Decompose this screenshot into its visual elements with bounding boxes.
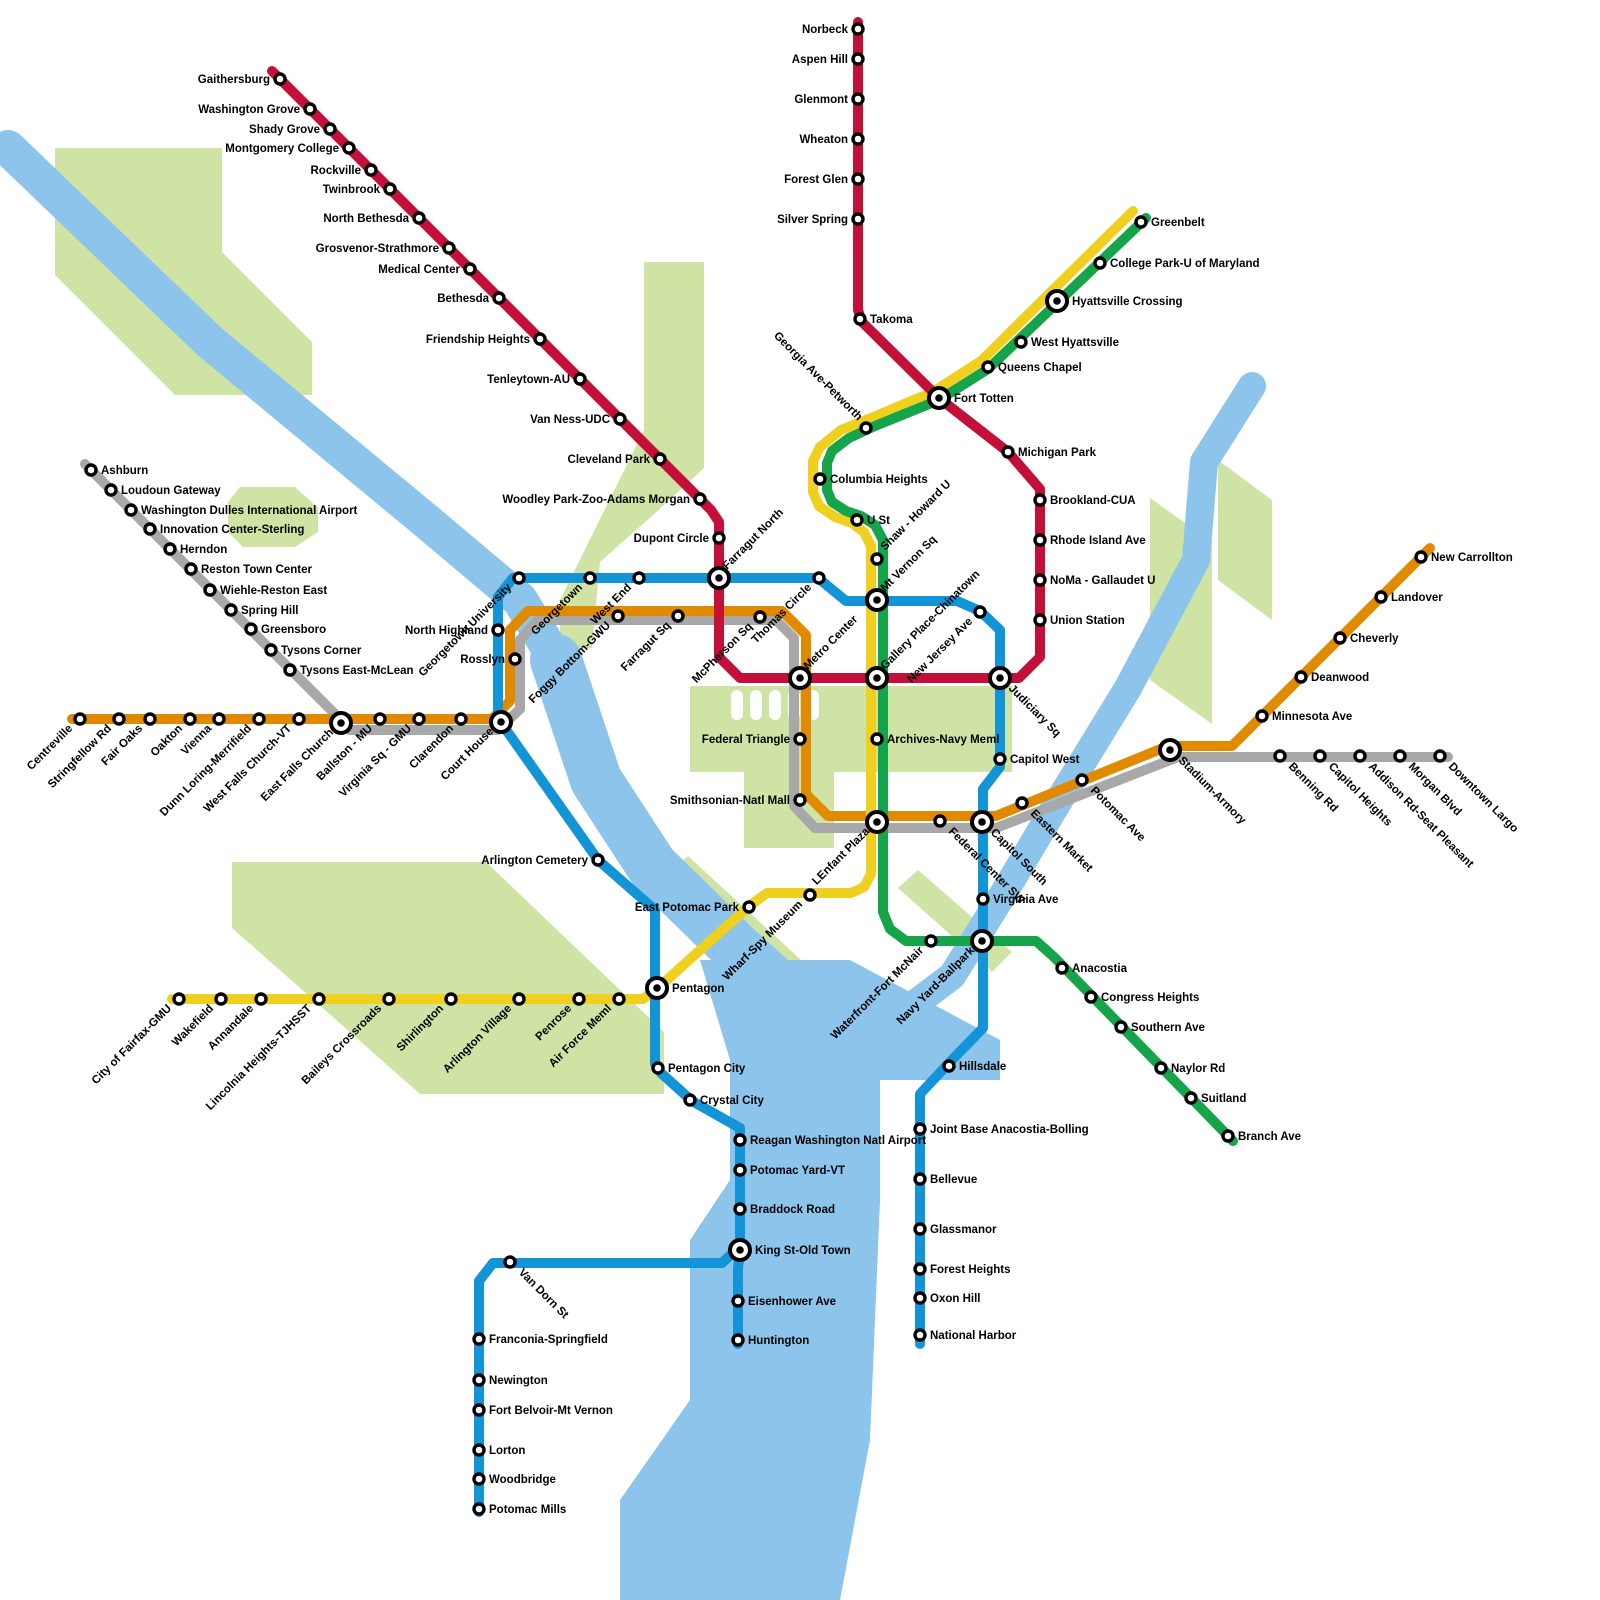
- station-label: Wheaton: [799, 134, 848, 146]
- station-shady-grove: [325, 124, 335, 134]
- station-fair-oaks: [145, 714, 155, 724]
- station-potomac-yard-vt: [735, 1165, 745, 1175]
- station-west-falls-church-vt: [294, 714, 304, 724]
- station-marker: [585, 573, 595, 583]
- station-takoma: [855, 314, 865, 324]
- station-label: Southern Ave: [1131, 1022, 1205, 1034]
- station-marker: [853, 134, 863, 144]
- metro-map-svg: GaithersburgWashington GroveShady GroveM…: [0, 0, 1600, 1600]
- station-marker: [1435, 751, 1445, 761]
- station-federal-triangle: [795, 734, 805, 744]
- station-new-jersey-ave: [975, 607, 985, 617]
- station-label: Hyattsville Crossing: [1072, 296, 1183, 308]
- station-label: Herndon: [180, 544, 227, 556]
- station-marker: [266, 645, 276, 655]
- station-label: Tysons Corner: [281, 645, 362, 657]
- station-label: North Bethesda: [323, 213, 409, 225]
- station-marker: [575, 374, 585, 384]
- station-label: Arlington Cemetery: [481, 855, 588, 867]
- station-benning-rd: [1275, 751, 1285, 761]
- station-label: Georgia Ave-Petworth: [771, 330, 864, 423]
- station-marker: [474, 1504, 484, 1514]
- station-marker: [514, 573, 524, 583]
- station-marker: [1057, 963, 1067, 973]
- station-marker: [1035, 615, 1045, 625]
- station-label: Tenleytown-AU: [487, 374, 570, 386]
- station-naylor-rd: [1156, 1063, 1166, 1073]
- station-label: College Park-U of Maryland: [1110, 258, 1260, 270]
- station-marker: [1156, 1063, 1166, 1073]
- station-marker: [254, 714, 264, 724]
- station-marker: [853, 24, 863, 34]
- station-marker: [216, 994, 226, 1004]
- station-marker: [1335, 633, 1345, 643]
- station-marker: [325, 124, 335, 134]
- station-label: Greensboro: [261, 624, 326, 636]
- station-label: Twinbrook: [323, 184, 381, 196]
- station-label: Medical Center: [378, 264, 460, 276]
- station-label: Takoma: [870, 314, 913, 326]
- station-marker: [735, 1165, 745, 1175]
- station-potomac-ave: [1077, 775, 1087, 785]
- transfer-dot: [796, 674, 804, 682]
- station-label: Grosvenor-Strathmore: [316, 243, 439, 255]
- station-marker: [915, 1224, 925, 1234]
- station-west-hyattsville: [1016, 337, 1026, 347]
- station-morgan-blvd: [1395, 751, 1405, 761]
- station-west-end: [634, 573, 644, 583]
- mall-pillar: [731, 690, 743, 720]
- station-georgetown-university: [514, 573, 524, 583]
- station-marker: [613, 611, 623, 621]
- station-marker: [1086, 992, 1096, 1002]
- station-rhode-island-ave: [1035, 535, 1045, 545]
- station-marker: [995, 754, 1005, 764]
- station-label: Cleveland Park: [568, 454, 651, 466]
- station-marker: [593, 855, 603, 865]
- station-label: Greenbelt: [1151, 217, 1205, 229]
- station-north-bethesda: [414, 213, 424, 223]
- station-marker: [1016, 337, 1026, 347]
- station-marker: [86, 465, 96, 475]
- station-marker: [685, 1095, 695, 1105]
- station-label: Vienna: [179, 722, 214, 757]
- station-farragut-north: [709, 568, 729, 588]
- station-van-ness-udc: [615, 414, 625, 424]
- station-shaw-howard-u: [872, 554, 882, 564]
- station-label: Montgomery College: [225, 143, 339, 155]
- station-marker: [695, 494, 705, 504]
- station-marker: [366, 165, 376, 175]
- station-marker: [294, 714, 304, 724]
- station-label: New Carrollton: [1431, 552, 1513, 564]
- station-label: West Hyattsville: [1031, 337, 1119, 349]
- station-clarendon: [456, 714, 466, 724]
- station-gallery-place-chinatown: [867, 668, 887, 688]
- station-twinbrook: [385, 184, 395, 194]
- station-tenleytown-au: [575, 374, 585, 384]
- station-forest-heights: [915, 1264, 925, 1274]
- transfer-dot: [337, 719, 345, 727]
- station-label: Stadium-Armory: [1176, 755, 1249, 828]
- station-innovation-center-sterling: [145, 524, 155, 534]
- station-washington-dulles-international-airport: [126, 505, 136, 515]
- station-glassmanor: [915, 1224, 925, 1234]
- station-marker: [1186, 1093, 1196, 1103]
- station-vienna: [214, 714, 224, 724]
- station-farragut-sq: [673, 611, 683, 621]
- transfer-dot: [978, 937, 986, 945]
- station-label: Dupont Circle: [634, 533, 709, 545]
- station-marker: [456, 714, 466, 724]
- station-eastern-market: [1017, 798, 1027, 808]
- potomac-upper: [8, 148, 576, 726]
- station-label: Crystal City: [700, 1095, 765, 1107]
- station-marker: [465, 264, 475, 274]
- station-marker: [735, 1204, 745, 1214]
- station-centreville: [75, 714, 85, 724]
- station-marker: [205, 585, 215, 595]
- station-marker: [494, 293, 504, 303]
- station-label: Congress Heights: [1101, 992, 1199, 1004]
- station-marker: [505, 1257, 515, 1267]
- transfer-dot: [873, 596, 881, 604]
- station-fort-belvoir-mt-vernon: [474, 1405, 484, 1415]
- station-label: Reagan Washington Natl Airport: [750, 1135, 926, 1147]
- station-smithsonian-natl-mall: [795, 795, 805, 805]
- station-label: Woodley Park-Zoo-Adams Morgan: [502, 494, 690, 506]
- station-label: Hillsdale: [959, 1061, 1006, 1073]
- station-label: Queens Chapel: [998, 362, 1082, 374]
- station-label: Ashburn: [101, 465, 148, 477]
- station-braddock-road: [735, 1204, 745, 1214]
- station-label: Oxon Hill: [930, 1293, 980, 1305]
- station-marker: [474, 1375, 484, 1385]
- station-marker: [1116, 1022, 1126, 1032]
- station-gaithersburg: [275, 74, 285, 84]
- station-label: Loudoun Gateway: [121, 485, 221, 497]
- metro-map: GaithersburgWashington GroveShady GroveM…: [0, 0, 1600, 1600]
- station-capitol-west: [995, 754, 1005, 764]
- station-label: NoMa - Gallaudet U: [1050, 575, 1155, 587]
- station-thomas-circle: [814, 573, 824, 583]
- station-marker: [285, 665, 295, 675]
- station-wharf-spy-museum: [805, 890, 815, 900]
- station-marker: [474, 1474, 484, 1484]
- station-label: King St-Old Town: [755, 1245, 851, 1257]
- station-marker: [853, 54, 863, 64]
- station-marker: [855, 314, 865, 324]
- station-marker: [384, 994, 394, 1004]
- station-michigan-park: [1003, 447, 1013, 457]
- station-tysons-corner: [266, 645, 276, 655]
- anacostia-park-northeast: [1218, 460, 1272, 620]
- station-label: Michigan Park: [1018, 447, 1097, 459]
- station-marker: [1136, 217, 1146, 227]
- station-metro-center: [790, 668, 810, 688]
- station-label: Archives-Navy Meml: [887, 734, 1000, 746]
- station-label: Glassmanor: [930, 1224, 997, 1236]
- station-label: Bethesda: [437, 293, 489, 305]
- station-label: Rosslyn: [460, 654, 505, 666]
- station-marker: [493, 625, 503, 635]
- station-marker: [653, 1063, 663, 1073]
- station-dupont-circle: [714, 533, 724, 543]
- mall-pillar: [769, 690, 781, 720]
- station-marker: [1035, 535, 1045, 545]
- station-label: Columbia Heights: [830, 474, 928, 486]
- station-federal-center-sw: [935, 816, 945, 826]
- station-marker: [795, 734, 805, 744]
- station-tysons-east-mclean: [285, 665, 295, 675]
- station-deanwood: [1296, 672, 1306, 682]
- station-label: Joint Base Anacostia-Bolling: [930, 1124, 1089, 1136]
- station-label: Pentagon City: [668, 1063, 746, 1075]
- station-suitland: [1186, 1093, 1196, 1103]
- station-national-harbor: [915, 1330, 925, 1340]
- station-rosslyn: [510, 654, 520, 664]
- station-woodley-park-zoo-adams-morgan: [695, 494, 705, 504]
- station-north-highland: [493, 625, 503, 635]
- station-marker: [853, 174, 863, 184]
- station-mcpherson-sq: [755, 612, 765, 622]
- station-oxon-hill: [915, 1293, 925, 1303]
- station-marker: [574, 994, 584, 1004]
- station-stadium-armory: [1160, 740, 1180, 760]
- station-union-station: [1035, 615, 1045, 625]
- station-label: Silver Spring: [777, 214, 848, 226]
- transfer-dot: [715, 574, 723, 582]
- station-marker: [186, 564, 196, 574]
- station-marker: [126, 505, 136, 515]
- station-label: Potomac Ave: [1088, 785, 1147, 844]
- station-marker: [1376, 592, 1386, 602]
- station-marker: [185, 714, 195, 724]
- station-marker: [385, 184, 395, 194]
- station-dunn-loring-merrifield: [254, 714, 264, 724]
- station-lenfant-plaza: [867, 812, 887, 832]
- station-marker: [474, 1405, 484, 1415]
- station-label: Newington: [489, 1375, 548, 1387]
- station-virginia-ave: [978, 894, 988, 904]
- station-label: Potomac Mills: [489, 1504, 566, 1516]
- station-archives-navy-meml: [872, 734, 882, 744]
- station-marker: [915, 1124, 925, 1134]
- station-city-of-fairfax-gmu: [174, 994, 184, 1004]
- station-ashburn: [86, 465, 96, 475]
- transfer-dot: [1053, 297, 1061, 305]
- station-marker: [655, 454, 665, 464]
- station-pentagon-city: [653, 1063, 663, 1073]
- station-marker: [872, 554, 882, 564]
- station-marker: [615, 414, 625, 424]
- station-cleveland-park: [655, 454, 665, 464]
- station-spring-hill: [226, 605, 236, 615]
- station-marker: [1355, 751, 1365, 761]
- station-norbeck: [853, 24, 863, 34]
- station-rockville: [366, 165, 376, 175]
- station-congress-heights: [1086, 992, 1096, 1002]
- station-label: Fort Belvoir-Mt Vernon: [489, 1405, 613, 1417]
- station-marker: [944, 1061, 954, 1071]
- station-label: Innovation Center-Sterling: [160, 524, 304, 536]
- station-marker: [935, 816, 945, 826]
- station-friendship-heights: [535, 334, 545, 344]
- transfer-dot: [978, 818, 986, 826]
- potomac-lower: [620, 960, 1000, 1600]
- station-waterfront-fort-mcnair: [926, 936, 936, 946]
- station-label: Anacostia: [1072, 963, 1128, 975]
- station-marker: [614, 994, 624, 1004]
- station-bethesda: [494, 293, 504, 303]
- station-label: Woodbridge: [489, 1474, 556, 1486]
- station-air-force-meml: [614, 994, 624, 1004]
- station-label: Washington Dulles International Airport: [141, 505, 358, 517]
- station-marker: [1035, 575, 1045, 585]
- station-label: Naylor Rd: [1171, 1063, 1225, 1075]
- station-marker: [145, 714, 155, 724]
- station-southern-ave: [1116, 1022, 1126, 1032]
- station-lincolnia-heights-tjhsst: [314, 994, 324, 1004]
- station-label: Forest Heights: [930, 1264, 1011, 1276]
- station-label: Shady Grove: [249, 124, 320, 136]
- station-label: Cheverly: [1350, 633, 1399, 645]
- station-loudoun-gateway: [106, 485, 116, 495]
- station-marker: [744, 902, 754, 912]
- transfer-dot: [1166, 746, 1174, 754]
- station-marker: [344, 143, 354, 153]
- station-marker: [815, 474, 825, 484]
- station-label: Rhode Island Ave: [1050, 535, 1146, 547]
- station-label: Deanwood: [1311, 672, 1369, 684]
- station-arlington-cemetery: [593, 855, 603, 865]
- station-grosvenor-strathmore: [444, 243, 454, 253]
- station-marker: [733, 1335, 743, 1345]
- station-queens-chapel: [983, 362, 993, 372]
- northwest-park: [55, 148, 312, 395]
- station-court-house: [491, 712, 511, 732]
- dulles-park: [228, 487, 318, 547]
- station-hyattsville-crossing: [1047, 291, 1067, 311]
- station-label: Forest Glen: [784, 174, 848, 186]
- transfer-dot: [935, 394, 943, 402]
- station-capitol-heights: [1315, 751, 1325, 761]
- transfer-dot: [497, 718, 505, 726]
- station-marker: [246, 624, 256, 634]
- station-label: Braddock Road: [750, 1204, 835, 1216]
- station-landover: [1376, 592, 1386, 602]
- station-ballston-mu: [375, 714, 385, 724]
- station-arlington-village: [514, 994, 524, 1004]
- station-stringfellow-rd: [114, 714, 124, 724]
- station-mt-vernon-sq: [867, 590, 887, 610]
- station-huntington: [733, 1335, 743, 1345]
- station-marker: [1315, 751, 1325, 761]
- station-newington: [474, 1375, 484, 1385]
- station-reagan-washington-natl-airport: [735, 1135, 745, 1145]
- station-marker: [853, 214, 863, 224]
- station-marker: [1275, 751, 1285, 761]
- station-marker: [106, 485, 116, 495]
- station-fort-totten: [929, 388, 949, 408]
- station-label: Rockville: [311, 165, 362, 177]
- station-marker: [474, 1334, 484, 1344]
- station-marker: [474, 1445, 484, 1455]
- station-marker: [75, 714, 85, 724]
- station-branch-ave: [1223, 1131, 1233, 1141]
- station-marker: [1095, 258, 1105, 268]
- station-silver-spring: [853, 214, 863, 224]
- station-label: Union Station: [1050, 615, 1125, 627]
- station-marker: [714, 533, 724, 543]
- station-glenmont: [853, 94, 863, 104]
- station-marker: [814, 573, 824, 583]
- station-marker: [983, 362, 993, 372]
- station-marker: [915, 1174, 925, 1184]
- station-georgetown: [585, 573, 595, 583]
- station-marker: [1223, 1131, 1233, 1141]
- station-label: Farragut North: [721, 507, 786, 572]
- station-addison-rd-seat-pleasant: [1355, 751, 1365, 761]
- station-label: Bellevue: [930, 1174, 977, 1186]
- station-label: Downtown Largo: [1446, 761, 1520, 835]
- station-label: Glenmont: [794, 94, 848, 106]
- station-annandale: [256, 994, 266, 1004]
- station-east-potomac-park: [744, 902, 754, 912]
- station-east-falls-church: [331, 713, 351, 733]
- station-label: Capitol West: [1010, 754, 1080, 766]
- station-marker: [414, 714, 424, 724]
- station-marker: [1416, 552, 1426, 562]
- station-label: East Potomac Park: [635, 902, 740, 914]
- station-label: Wiehle-Reston East: [220, 585, 327, 597]
- station-new-carrollton: [1416, 552, 1426, 562]
- station-marker: [414, 213, 424, 223]
- station-crystal-city: [685, 1095, 695, 1105]
- station-marker: [872, 734, 882, 744]
- station-greenbelt: [1136, 217, 1146, 227]
- station-label: Reston Town Center: [201, 564, 312, 576]
- station-marker: [174, 994, 184, 1004]
- station-label: Norbeck: [802, 24, 849, 36]
- station-marker: [1296, 672, 1306, 682]
- station-label: Virginia Ave: [993, 894, 1058, 906]
- station-marker: [975, 607, 985, 617]
- station-label: City of Fairfax-GMU: [90, 1003, 174, 1087]
- station-label: Friendship Heights: [426, 334, 530, 346]
- station-label: Gaithersburg: [198, 74, 270, 86]
- station-marker: [256, 994, 266, 1004]
- station-marker: [1077, 775, 1087, 785]
- station-virginia-sq-gmu: [414, 714, 424, 724]
- station-marker: [535, 334, 545, 344]
- station-marker: [1017, 798, 1027, 808]
- station-label: Pentagon: [672, 983, 724, 995]
- station-label: Branch Ave: [1238, 1131, 1301, 1143]
- station-label: Franconia-Springfield: [489, 1334, 608, 1346]
- station-label: Oakton: [149, 723, 186, 760]
- station-label: Spring Hill: [241, 605, 299, 617]
- station-marker: [915, 1264, 925, 1274]
- station-label: Fort Totten: [954, 393, 1014, 405]
- station-marker: [861, 423, 871, 433]
- station-bellevue: [915, 1174, 925, 1184]
- station-downtown-largo: [1435, 751, 1445, 761]
- station-marker: [673, 611, 683, 621]
- station-label: National Harbor: [930, 1330, 1017, 1342]
- station-college-park-u-of-maryland: [1095, 258, 1105, 268]
- station-minnesota-ave: [1257, 711, 1267, 721]
